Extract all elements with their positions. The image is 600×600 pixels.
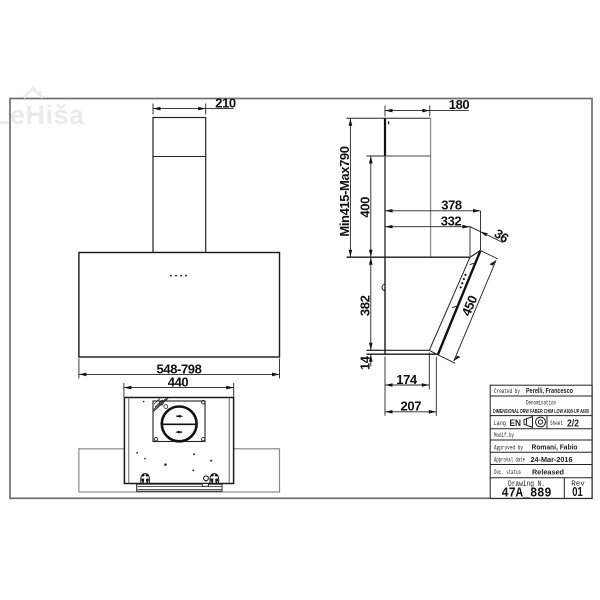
svg-text:14: 14 <box>358 355 373 370</box>
svg-text:180: 180 <box>449 97 470 112</box>
svg-text:01: 01 <box>572 485 583 499</box>
svg-text:Approved by: Approved by <box>494 444 523 451</box>
svg-text:332: 332 <box>441 214 462 229</box>
svg-text:Sheet: Sheet <box>550 420 563 427</box>
svg-text:Denomination: Denomination <box>526 400 556 407</box>
svg-text:Perelli, Francesco: Perelli, Francesco <box>526 386 573 395</box>
svg-text:Created by: Created by <box>494 388 520 395</box>
svg-text:Min415-Max790: Min415-Max790 <box>337 146 352 236</box>
svg-text:400: 400 <box>358 197 373 218</box>
svg-text:174: 174 <box>396 372 418 387</box>
svg-text:Released: Released <box>532 467 564 476</box>
svg-text:47A_889: 47A_889 <box>502 486 552 501</box>
svg-text:378: 378 <box>441 198 462 213</box>
svg-text:Doc. status: Doc. status <box>494 469 521 476</box>
svg-text:382: 382 <box>358 295 373 316</box>
svg-text:Modif.by: Modif.by <box>494 432 514 439</box>
svg-text:LeHiša: LeHiša <box>0 100 85 130</box>
svg-text:EN: EN <box>510 418 522 429</box>
svg-text:DIMENSIONAL DRW FABER CHIM LOW: DIMENSIONAL DRW FABER CHIM LOW A600-UP A… <box>493 409 589 415</box>
svg-text:440: 440 <box>168 374 189 389</box>
svg-text:210: 210 <box>215 95 236 110</box>
svg-text:Lang: Lang <box>494 420 507 427</box>
svg-text:207: 207 <box>401 399 422 414</box>
svg-text:24-Mar-2016: 24-Mar-2016 <box>531 455 573 464</box>
svg-text:Romani, Fabio: Romani, Fabio <box>532 443 578 452</box>
svg-text:Approval date: Approval date <box>494 457 525 464</box>
svg-text:2/2: 2/2 <box>567 419 579 430</box>
